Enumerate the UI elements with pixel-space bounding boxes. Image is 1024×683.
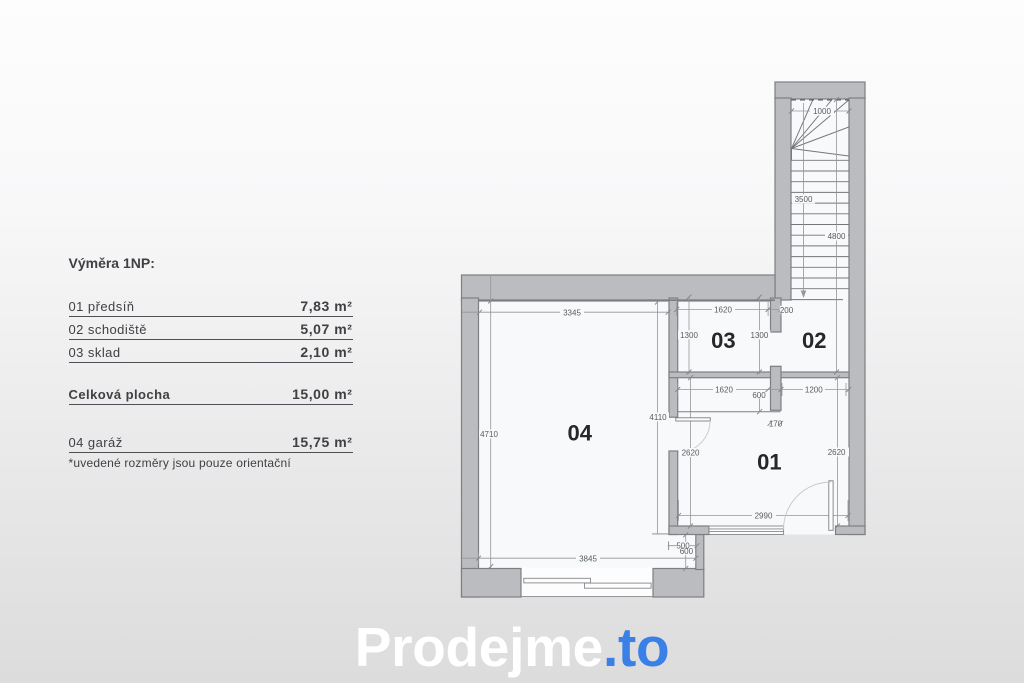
svg-text:1620: 1620	[715, 386, 733, 395]
svg-text:1200: 1200	[805, 386, 823, 395]
svg-text:4800: 4800	[828, 232, 846, 241]
svg-text:4110: 4110	[649, 413, 667, 422]
svg-text:1620: 1620	[714, 306, 732, 315]
svg-text:600: 600	[680, 547, 694, 556]
svg-text:04: 04	[567, 421, 592, 446]
svg-text:03: 03	[711, 328, 735, 353]
svg-text:200: 200	[780, 306, 794, 315]
svg-text:1300: 1300	[751, 331, 769, 340]
svg-text:2620: 2620	[828, 448, 846, 457]
svg-text:3845: 3845	[579, 555, 597, 564]
svg-text:2620: 2620	[682, 449, 700, 458]
svg-text:600: 600	[752, 391, 766, 400]
svg-text:2990: 2990	[755, 512, 773, 521]
svg-text:1000: 1000	[813, 107, 831, 116]
svg-text:1300: 1300	[680, 331, 698, 340]
svg-text:02: 02	[802, 328, 826, 353]
svg-text:01: 01	[757, 450, 781, 475]
svg-text:3345: 3345	[563, 309, 581, 318]
svg-text:170: 170	[769, 420, 783, 429]
svg-text:3500: 3500	[795, 195, 813, 204]
svg-text:4710: 4710	[480, 430, 498, 439]
